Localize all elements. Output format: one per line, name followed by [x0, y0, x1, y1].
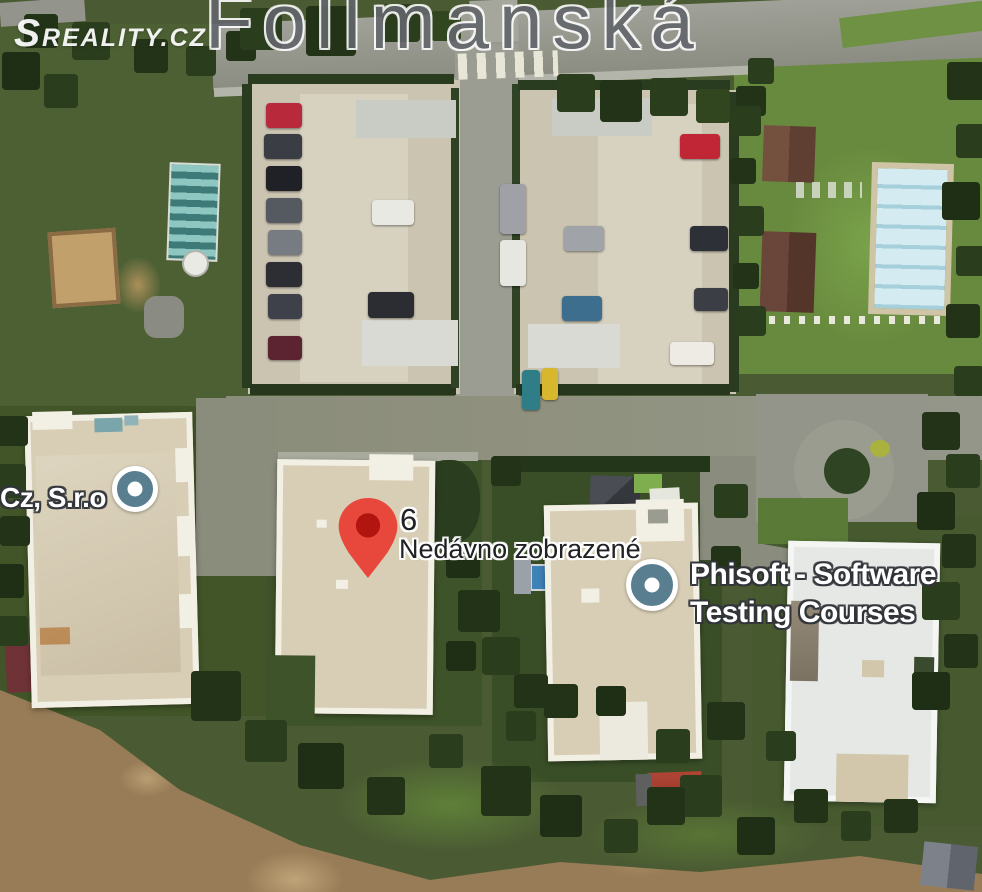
van — [500, 184, 526, 234]
car — [522, 370, 540, 410]
street-label: Follmanská — [205, 0, 704, 67]
car — [266, 103, 302, 128]
grass-patch — [590, 800, 820, 870]
car — [268, 336, 302, 360]
car — [500, 240, 526, 286]
shed-annex — [635, 774, 652, 807]
hedge — [250, 384, 456, 395]
place-label-phisoft-line2[interactable]: Testing Courses — [690, 596, 915, 630]
roof-vent — [336, 580, 348, 589]
place-marker-icon[interactable] — [112, 466, 158, 512]
car — [266, 166, 302, 191]
tree-cluster-bottom — [0, 0, 2, 2]
roof-vent — [317, 520, 327, 528]
roundabout-island — [824, 448, 870, 494]
hedge — [248, 74, 454, 84]
car — [564, 226, 604, 251]
bush — [870, 440, 890, 457]
car — [264, 134, 302, 159]
driveway — [196, 398, 278, 576]
courtyard — [836, 754, 909, 803]
recently-viewed-label[interactable]: Nedávno zobrazené — [399, 534, 641, 565]
carport-roof — [362, 320, 458, 366]
hedge — [498, 456, 710, 472]
hedge — [518, 80, 730, 90]
roof-notch — [914, 657, 935, 689]
skylight — [124, 415, 138, 425]
pin-number-label[interactable]: 6 — [400, 502, 417, 538]
lawn-patch — [758, 498, 848, 544]
paved-patch — [144, 296, 184, 338]
place-marker-icon[interactable] — [626, 559, 678, 611]
yard-notch — [267, 655, 316, 721]
carport-roof — [356, 100, 456, 138]
grass-patch — [340, 760, 560, 850]
car — [372, 200, 414, 225]
car — [266, 198, 302, 223]
garden-items — [796, 182, 862, 198]
place-label-cz-sro[interactable]: Cz, S.r.o — [0, 482, 106, 514]
car — [680, 134, 720, 159]
hedge — [512, 84, 520, 388]
garden-shed — [762, 125, 816, 183]
car — [670, 342, 714, 365]
roof-vent — [581, 588, 599, 602]
sandbox — [47, 228, 120, 309]
roof-vent — [862, 660, 884, 677]
roof-step — [32, 411, 72, 430]
satellite-dish — [182, 250, 209, 277]
hedge — [729, 92, 739, 392]
car — [266, 262, 302, 287]
car — [694, 288, 728, 311]
roof-notch — [599, 702, 648, 761]
fence — [754, 316, 954, 324]
greenhouse — [166, 162, 220, 262]
balcony — [179, 594, 196, 628]
carport-roof — [552, 98, 652, 136]
roof-structure-inner — [648, 509, 668, 523]
car — [268, 230, 302, 255]
shed-red — [647, 771, 702, 809]
car — [562, 296, 602, 321]
chimney — [369, 454, 413, 480]
carport-roof — [528, 324, 620, 368]
swimming-pool — [868, 162, 954, 316]
car — [690, 226, 728, 251]
satellite-map[interactable]: Follmanská Cz, S.r.o Phisoft - Software … — [0, 0, 982, 892]
skylight — [94, 418, 122, 433]
car — [542, 368, 558, 400]
car — [368, 292, 414, 318]
building-1 — [24, 412, 200, 708]
garden-shed — [760, 231, 817, 313]
place-label-phisoft-line1[interactable]: Phisoft - Software — [690, 558, 936, 592]
hedge — [242, 84, 252, 388]
shed-gray — [920, 841, 978, 890]
balcony — [177, 516, 194, 556]
car — [268, 294, 302, 319]
red-pin-icon[interactable] — [337, 497, 399, 579]
balcony — [175, 448, 192, 482]
sreality-watermark-logo: Sreality.cz — [14, 12, 207, 56]
